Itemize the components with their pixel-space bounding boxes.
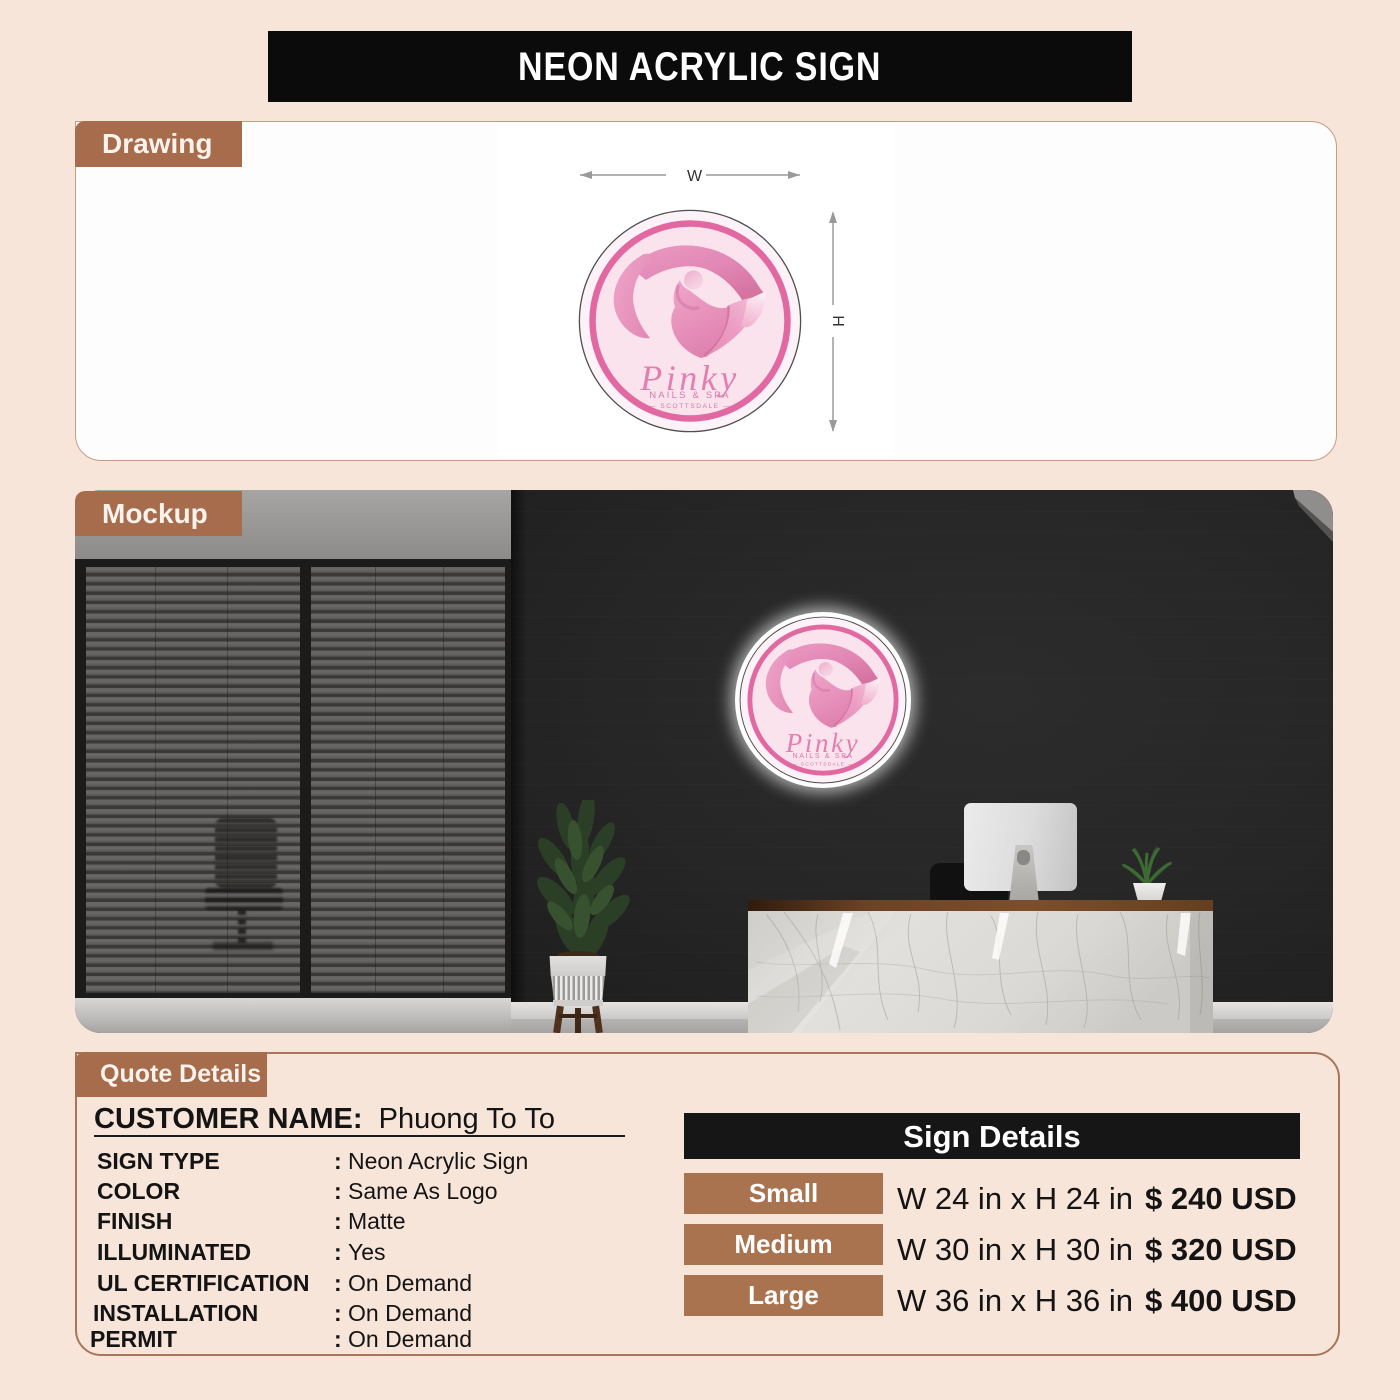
svg-text:H: H [829,315,844,327]
svg-text:NAILS & SPA: NAILS & SPA [649,390,731,401]
svg-text:NAILS & SPA: NAILS & SPA [792,752,853,760]
svg-text:W: W [687,168,703,185]
svg-text:— SCOTTSDALE —: — SCOTTSDALE — [649,403,731,410]
svg-text:— SCOTTSDALE —: — SCOTTSDALE — [792,761,854,767]
